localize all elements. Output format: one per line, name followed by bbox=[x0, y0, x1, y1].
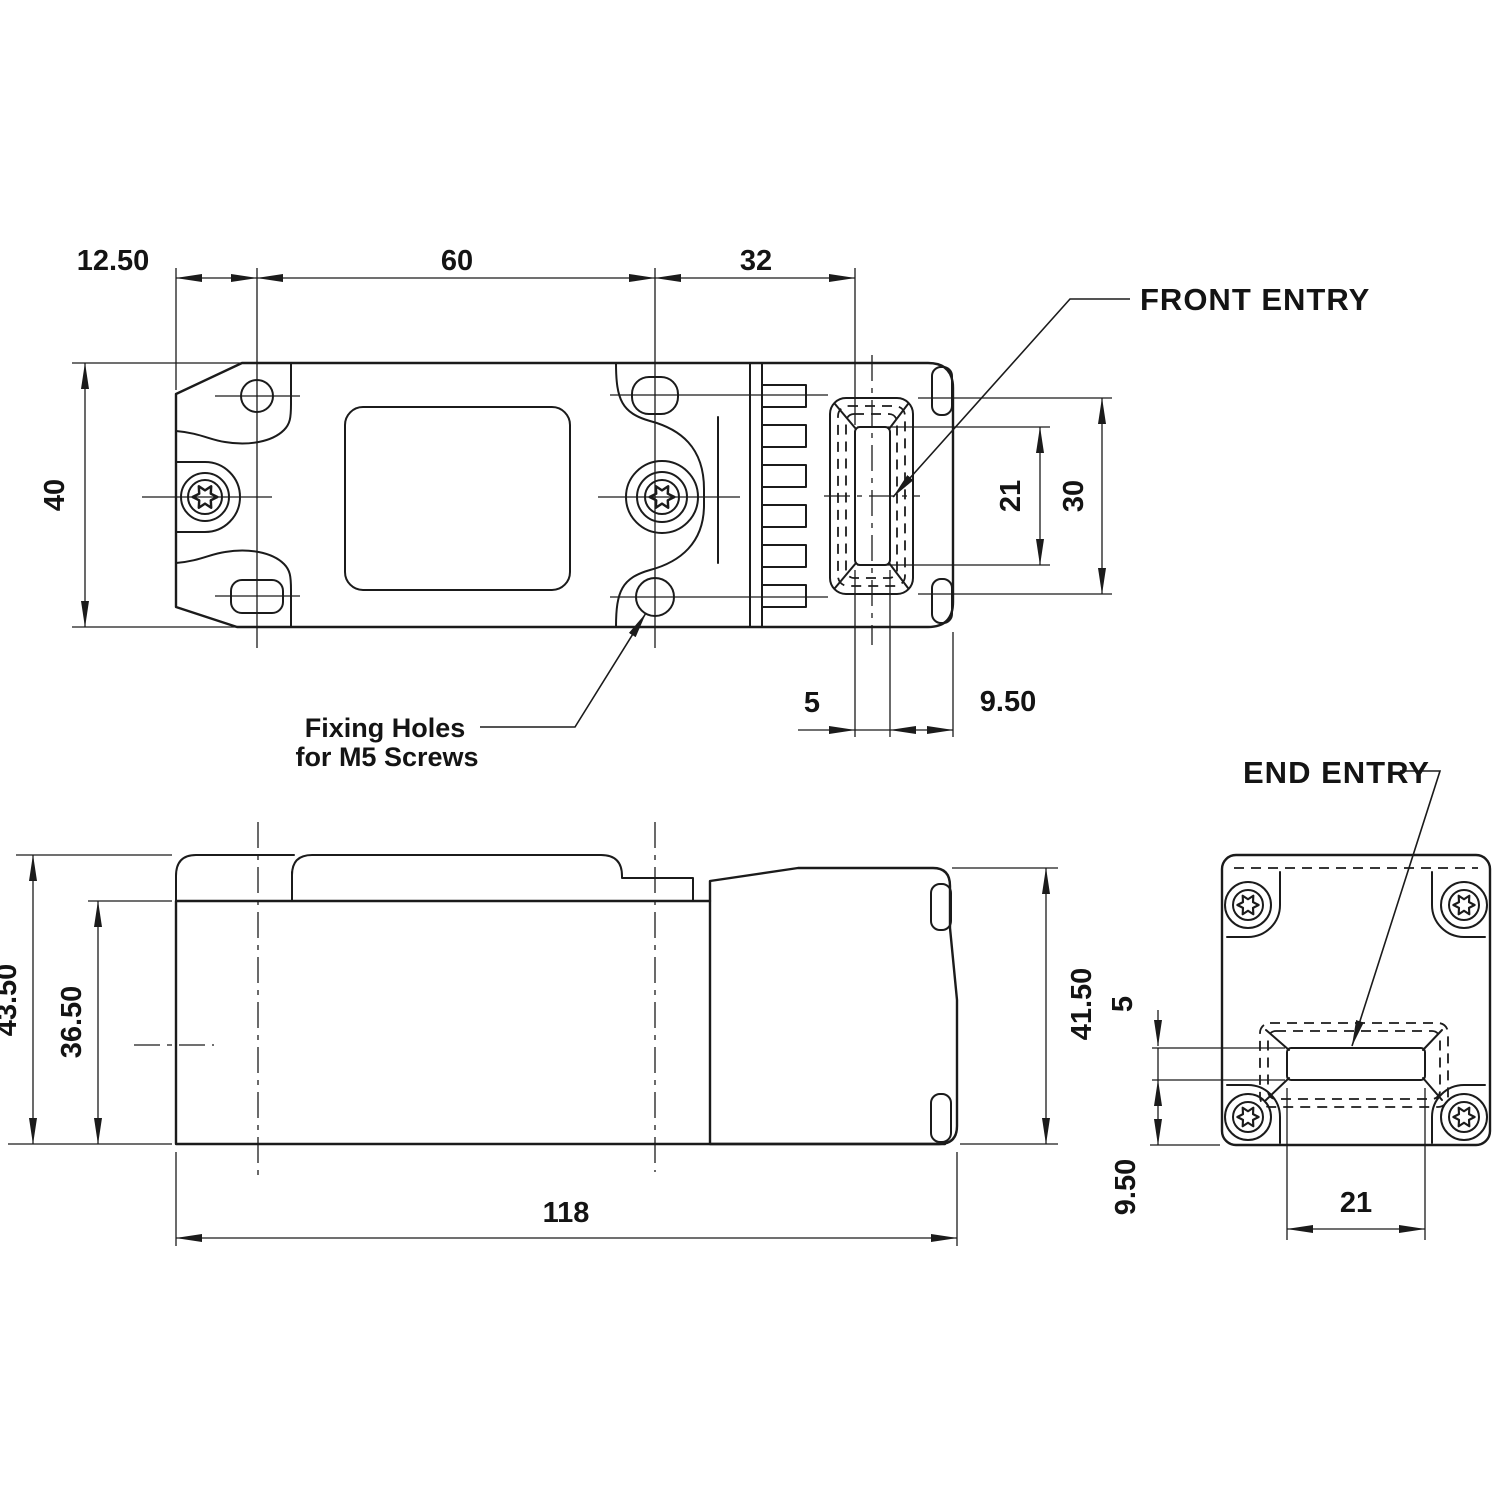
end-torx-screw-bottom-left bbox=[1225, 1094, 1271, 1140]
dimension-end-slot-width: 21 bbox=[1287, 1088, 1425, 1240]
dim-21-front: 21 bbox=[995, 480, 1027, 512]
dim-118: 118 bbox=[543, 1197, 590, 1229]
torx-icon bbox=[1237, 896, 1258, 915]
head-ribs bbox=[762, 385, 806, 607]
dim-30: 30 bbox=[1058, 480, 1090, 512]
dim-32: 32 bbox=[740, 245, 772, 277]
top-view-lid-recess bbox=[345, 407, 570, 590]
end-torx-screw-top-left bbox=[1225, 882, 1271, 928]
dim-41-50: 41.50 bbox=[1066, 968, 1098, 1041]
side-view: 43.50 36.50 41.50 118 bbox=[0, 822, 1098, 1246]
side-view-lid bbox=[176, 855, 693, 901]
side-head-cutout-top bbox=[931, 884, 951, 930]
end-torx-screw-top-right bbox=[1441, 882, 1487, 928]
side-view-body bbox=[176, 901, 945, 1144]
dimension-hole-spacing: 60 bbox=[257, 245, 655, 278]
top-view: 12.50 60 32 40 21 30 bbox=[39, 245, 1370, 772]
end-torx-screw-bottom-right bbox=[1441, 1094, 1487, 1140]
dimension-body-height: 36.50 bbox=[56, 901, 172, 1144]
dim-36-50: 36.50 bbox=[56, 986, 88, 1059]
torx-screw-left bbox=[142, 462, 272, 532]
dimension-end-bottom-offset: 9.50 bbox=[1110, 1080, 1220, 1215]
dim-9-50-end: 9.50 bbox=[1110, 1159, 1142, 1215]
front-entry-port bbox=[824, 355, 920, 645]
dimension-slot-width: 5 9.50 bbox=[798, 570, 1036, 737]
end-entry-port bbox=[1260, 1023, 1448, 1107]
torx-icon bbox=[1453, 896, 1474, 915]
front-entry-label: FRONT ENTRY bbox=[893, 282, 1370, 497]
torx-icon bbox=[1237, 1108, 1258, 1127]
side-head-cutout-bottom bbox=[931, 1094, 951, 1142]
front-entry-text: FRONT ENTRY bbox=[1140, 282, 1370, 317]
dim-40: 40 bbox=[39, 479, 71, 511]
dimension-head-offset: 32 bbox=[655, 245, 855, 278]
dimension-end-slot-height: 5 bbox=[1107, 996, 1285, 1080]
dim-9-50-top: 9.50 bbox=[980, 686, 1036, 718]
end-view: 5 9.50 21 END ENTRY bbox=[1107, 755, 1490, 1240]
dim-12-50: 12.50 bbox=[77, 245, 150, 277]
dim-60: 60 bbox=[441, 245, 473, 277]
fixing-holes-text-2: for M5 Screws bbox=[295, 742, 478, 772]
dim-21-end: 21 bbox=[1340, 1187, 1372, 1219]
fixing-holes-label: Fixing Holes for M5 Screws bbox=[295, 613, 646, 772]
drawing-canvas: 12.50 60 32 40 21 30 bbox=[0, 0, 1500, 1500]
dimension-overall-length: 118 bbox=[176, 1152, 957, 1246]
dim-43-50: 43.50 bbox=[0, 964, 23, 1037]
side-view-head bbox=[710, 868, 957, 1144]
dim-5-end: 5 bbox=[1107, 996, 1139, 1012]
end-entry-label: END ENTRY bbox=[1243, 755, 1440, 1046]
dim-5-top: 5 bbox=[804, 687, 820, 719]
fixing-holes-text-1: Fixing Holes bbox=[305, 713, 466, 743]
head-divider bbox=[750, 364, 762, 626]
engineering-drawing: 12.50 60 32 40 21 30 bbox=[0, 0, 1500, 1500]
dimension-head-height: 41.50 bbox=[952, 868, 1098, 1144]
end-entry-text: END ENTRY bbox=[1243, 755, 1430, 790]
torx-icon bbox=[1453, 1108, 1474, 1127]
